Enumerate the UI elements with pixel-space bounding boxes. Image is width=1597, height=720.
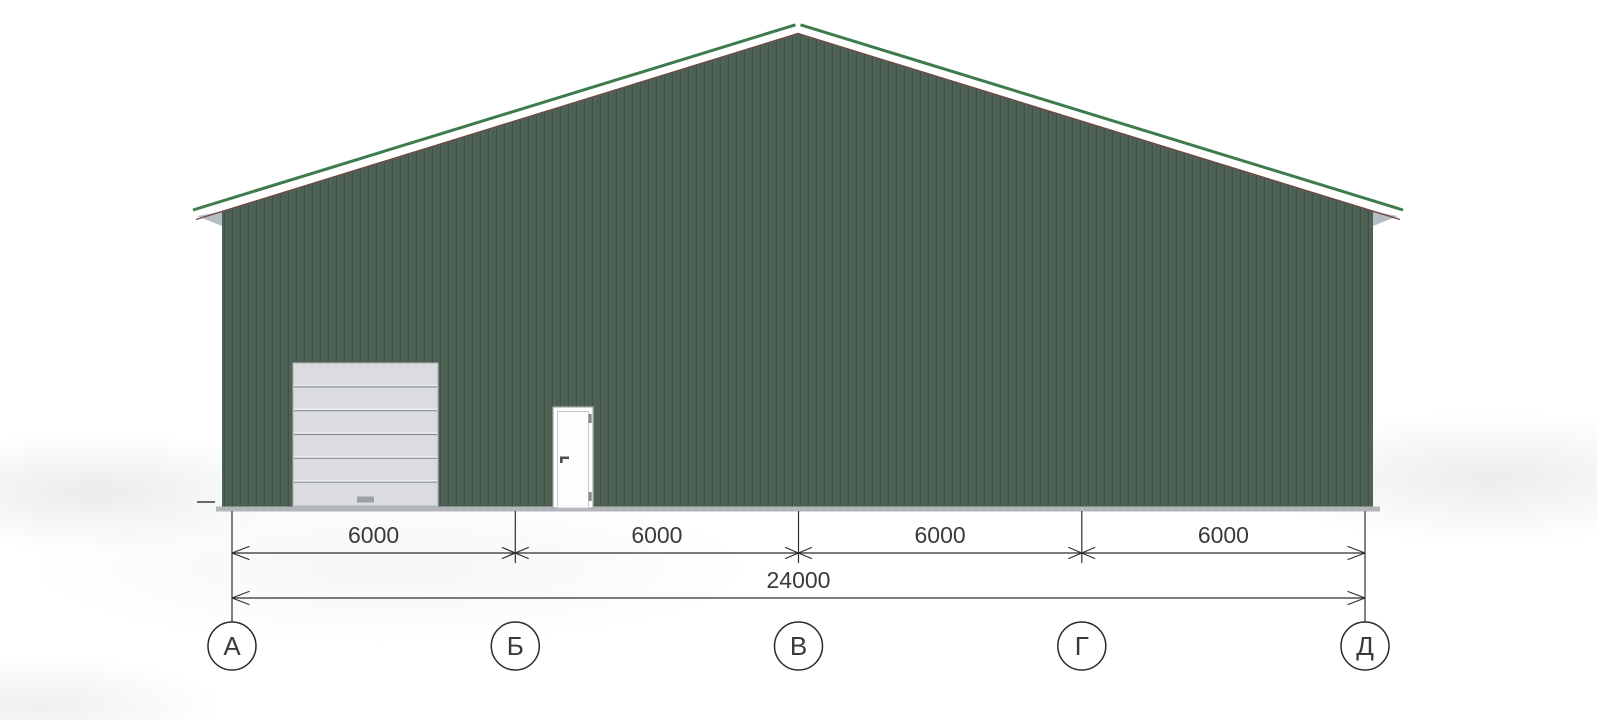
axis-label-d: Д [1356, 631, 1374, 661]
elevation-drawing: 6000 6000 6000 6000 24000 А Б В Г Д [0, 0, 1597, 720]
axis-label-a: А [223, 631, 241, 661]
elevation-drawing-canvas: 6000 6000 6000 6000 24000 А Б В Г Д [0, 0, 1597, 720]
dimension-segment-1-label: 6000 [348, 522, 399, 548]
plinth-base-line [216, 507, 1380, 512]
dimension-segment-3-label: 6000 [915, 522, 966, 548]
eave-right-icon [1373, 212, 1398, 227]
axis-label-b: Б [507, 631, 524, 661]
axis-bubbles: А Б В Г Д [208, 622, 1389, 670]
gate-handle-icon [357, 497, 374, 503]
sectional-gate [293, 363, 438, 506]
door-hinge-top-icon [589, 414, 592, 423]
dimension-total-label: 24000 [767, 567, 831, 593]
entry-door [553, 407, 593, 508]
dimension-system: 6000 6000 6000 6000 24000 А Б В Г Д [208, 511, 1389, 670]
building-facade [193, 25, 1403, 512]
dimension-segment-4-label: 6000 [1198, 522, 1249, 548]
axis-label-g: Г [1075, 631, 1089, 661]
door-hinge-bottom-icon [589, 492, 592, 501]
dimension-segment-2-label: 6000 [631, 522, 682, 548]
axis-label-v: В [790, 631, 807, 661]
